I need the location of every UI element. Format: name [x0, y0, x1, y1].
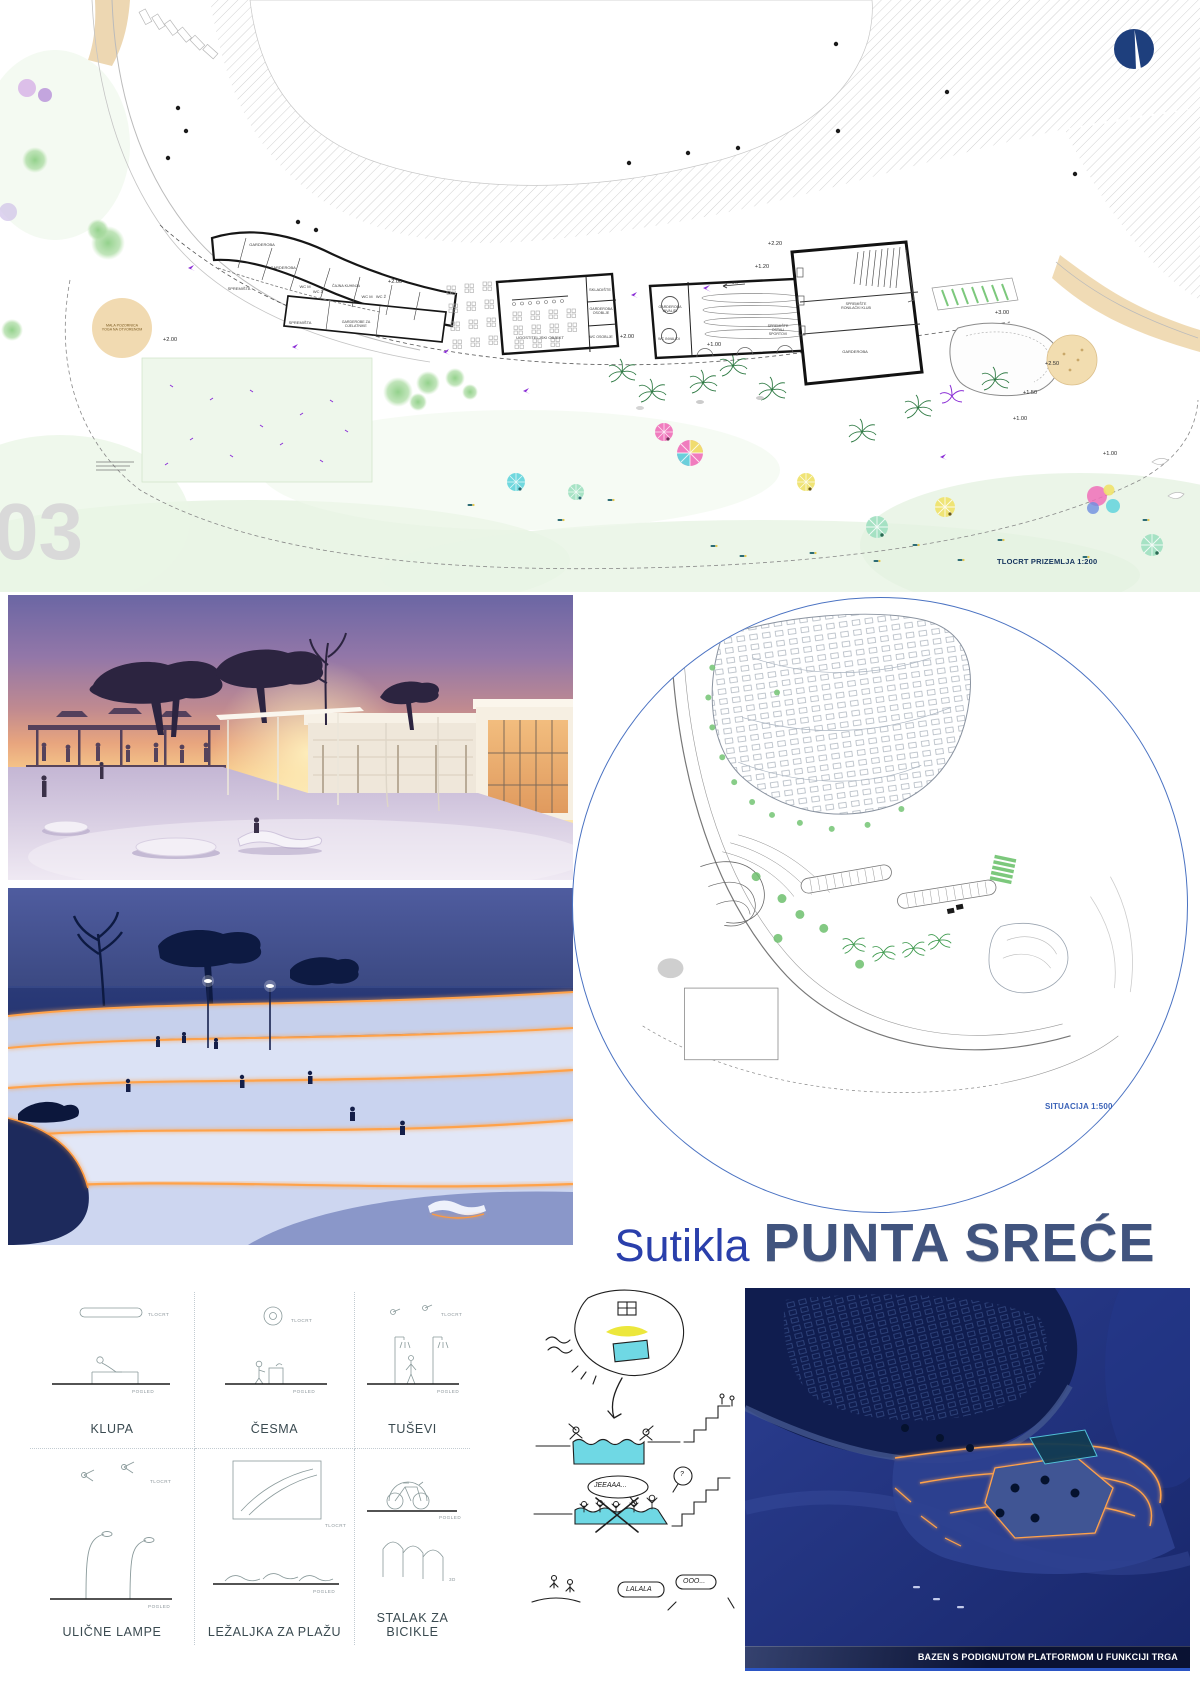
level-label: +2.00 [388, 279, 402, 285]
view-tag: POGLED [132, 1389, 154, 1394]
title-prefix: Sutikla [614, 1220, 749, 1271]
sketch-bubble-yeah: JEEAAA... [594, 1482, 627, 1489]
room-label: WC OSOBLJE [586, 336, 616, 340]
concept-sketch: JEEAAA... ? LALALA OOO... [518, 1280, 748, 1628]
level-label: +2.00 [620, 334, 634, 340]
tusevi-drawing [355, 1292, 470, 1412]
furniture-cell-tusevi: TLOCRT POGLED TUŠEVI [355, 1292, 470, 1449]
furniture-label: ULIČNE LAMPE [30, 1625, 194, 1639]
view-tag: POGLED [293, 1389, 315, 1394]
room-label: SKLADIŠTE [589, 288, 611, 292]
cesma-drawing [195, 1292, 355, 1412]
lawn [142, 358, 372, 482]
furniture-label: ČESMA [195, 1422, 354, 1436]
level-label: +2.00 [163, 337, 177, 343]
parking-ticks [139, 9, 218, 59]
furniture-label: LEŽALJKA ZA PLAŽU [195, 1625, 354, 1639]
room-label: GARDEROBA [270, 266, 296, 270]
render-night-terraces [8, 888, 573, 1245]
room-label: SPREMIŠTA [228, 287, 251, 291]
level-label: +3.00 [995, 310, 1009, 316]
situation-drawing [573, 598, 1186, 1211]
level-label: +1.20 [755, 264, 769, 270]
furniture-cell-cesma: TLOCRT POGLED ČESMA [195, 1292, 355, 1449]
furniture-grid: TLOCRT POGLED KLUPA TLOCRT POGLED ČESMA [30, 1292, 470, 1645]
room-label: WC Ž [313, 290, 323, 294]
plan-tag: TLOCRT [148, 1312, 169, 1317]
ground-floor-plan: 03 TLOCRT PRIZEMLJA 1:200 MALA POZORNICA… [0, 0, 1200, 592]
furniture-cell-ulicne-lampe: TLOCRT POGLED ULIČNE LAMPE [30, 1449, 195, 1645]
night-render-drawing [8, 888, 573, 1245]
crosswalk [990, 855, 1017, 884]
plan-tag: TLOCRT [441, 1312, 462, 1317]
room-label: SPREMIŠTE OSTALI SPORTOVI [763, 325, 793, 337]
stalak-drawing [355, 1449, 470, 1617]
logo-icon [1114, 29, 1154, 69]
room-label: UGOSTITELJSKI OBJEKT [516, 336, 564, 340]
view-tag: POGLED [148, 1604, 170, 1609]
view-tag: POGLED [439, 1515, 461, 1520]
level-label: +1.00 [707, 342, 721, 348]
lampe-drawing [30, 1449, 195, 1617]
presentation-board: 03 TLOCRT PRIZEMLJA 1:200 MALA POZORNICA… [0, 0, 1200, 1699]
room-label: WC M [299, 285, 310, 289]
building-b4 [792, 242, 922, 384]
room-label: GARDEROBA [249, 243, 275, 247]
room-label: GARDEROBA INVALIDI [655, 306, 685, 314]
level-label: +1.50 [1023, 390, 1037, 396]
klupa-drawing [30, 1292, 195, 1412]
room-label: SPREMIŠTA [289, 321, 312, 325]
room-label: WC Ž [376, 295, 386, 299]
aerial-drawing [745, 1288, 1190, 1646]
plan-tag: TLOCRT [325, 1523, 346, 1528]
campsite-area [705, 614, 970, 832]
furniture-cell-lezaljka: TLOCRT POGLED LEŽALJKA ZA PLAŽU [195, 1449, 355, 1645]
render-aerial-night: BAZEN S PODIGNUTOM PLATFORMOM U FUNKCIJI… [745, 1288, 1190, 1668]
level-label: +1.00 [1013, 416, 1027, 422]
outdoor-tables [447, 282, 498, 349]
render-sunset-plaza [8, 595, 573, 880]
room-label: GARDEROBA [842, 350, 868, 354]
room-label: WC M [361, 295, 372, 299]
ramp-label: 5% [732, 281, 738, 285]
room-label: ČAJNA KUHINJA [331, 285, 361, 289]
plan-tag: TLOCRT [291, 1318, 312, 1323]
situation-scale-label: SITUACIJA 1:500 [1045, 1102, 1113, 1111]
sketch-bubble-ooo: OOO... [683, 1578, 705, 1585]
furniture-label: KLUPA [30, 1422, 194, 1436]
room-label: WC INVALIDI [654, 338, 684, 342]
view-tag: POGLED [437, 1389, 459, 1394]
project-title: SutiklaPUNTA SREĆE [572, 1212, 1198, 1276]
3d-tag: 3D [449, 1577, 456, 1582]
aerial-underline [745, 1668, 1190, 1671]
view-tag: POGLED [313, 1589, 335, 1594]
stage-label: MALA POZORNICAYOGA NA OTVORENOM [99, 324, 145, 333]
furniture-cell-stalak: POGLED 3D STALAK ZA BICIKLE [355, 1449, 470, 1645]
furniture-label: TUŠEVI [355, 1422, 470, 1436]
situation-plan-circle [572, 597, 1188, 1213]
room-label: GARDEROBA OSOBLJE [586, 308, 616, 316]
furniture-cell-klupa: TLOCRT POGLED KLUPA [30, 1292, 195, 1449]
room-label: GARDEROBE ZA DJELATNIKE [341, 321, 371, 329]
plan-scale-label: TLOCRT PRIZEMLJA 1:200 [997, 557, 1097, 566]
building-b3 [650, 278, 820, 358]
site-elements [658, 855, 1068, 1060]
furniture-label: STALAK ZA BICIKLE [355, 1611, 470, 1639]
level-label: +2.20 [768, 241, 782, 247]
sunset-render-drawing [8, 595, 573, 880]
plan-tag: TLOCRT [150, 1479, 171, 1484]
sketch-bubble-lalala: LALALA [626, 1586, 652, 1593]
level-label: +2.50 [1045, 361, 1059, 367]
plan-drawing [0, 0, 1200, 592]
level-label: +1.00 [1103, 451, 1117, 457]
sketch-bubble-question: ? [680, 1471, 684, 1478]
terraces [8, 992, 573, 1245]
room-label: SPREMIŠTE RONILAČKI KLUB [841, 303, 871, 311]
sketch-drawing [518, 1280, 748, 1628]
panel-number-watermark: 03 [0, 492, 83, 572]
aerial-caption: BAZEN S PODIGNUTOM PLATFORMOM U FUNKCIJI… [745, 1646, 1190, 1668]
title-main: PUNTA SREĆE [764, 1213, 1156, 1273]
